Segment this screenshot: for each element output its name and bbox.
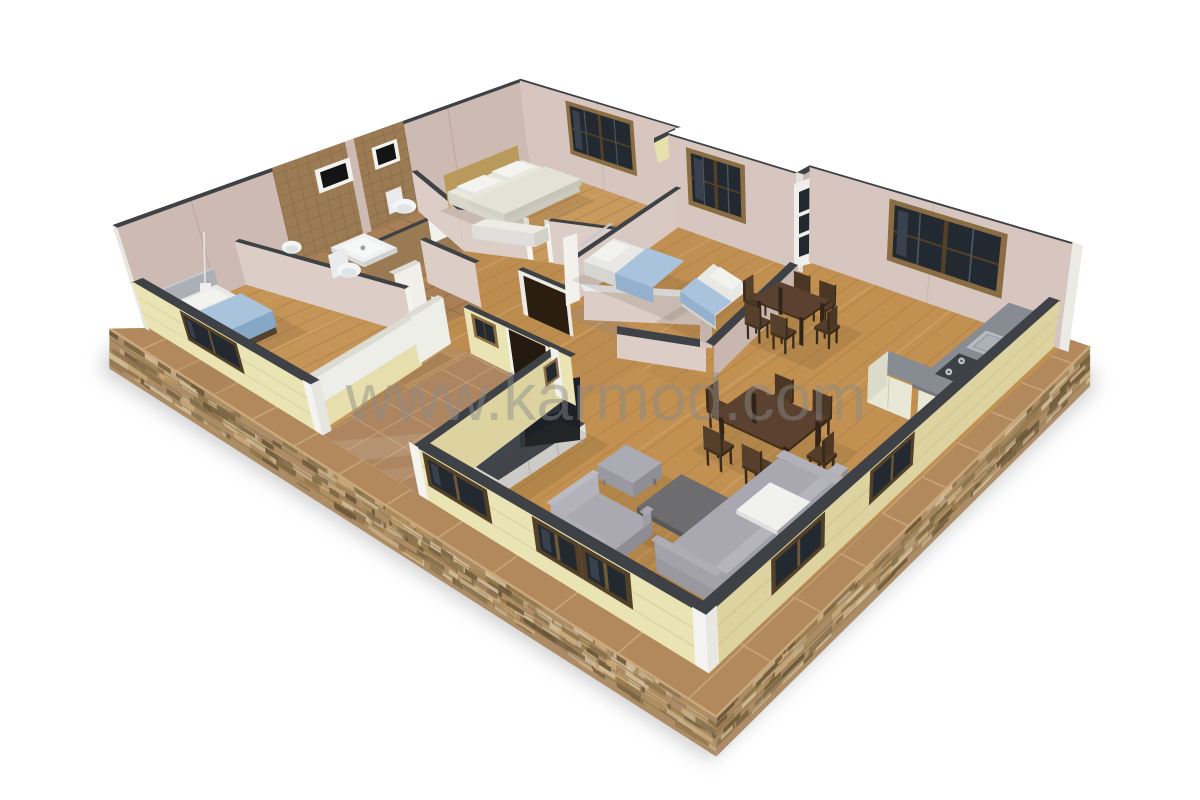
- svg-text:www.karmod.com: www.karmod.com: [345, 360, 867, 434]
